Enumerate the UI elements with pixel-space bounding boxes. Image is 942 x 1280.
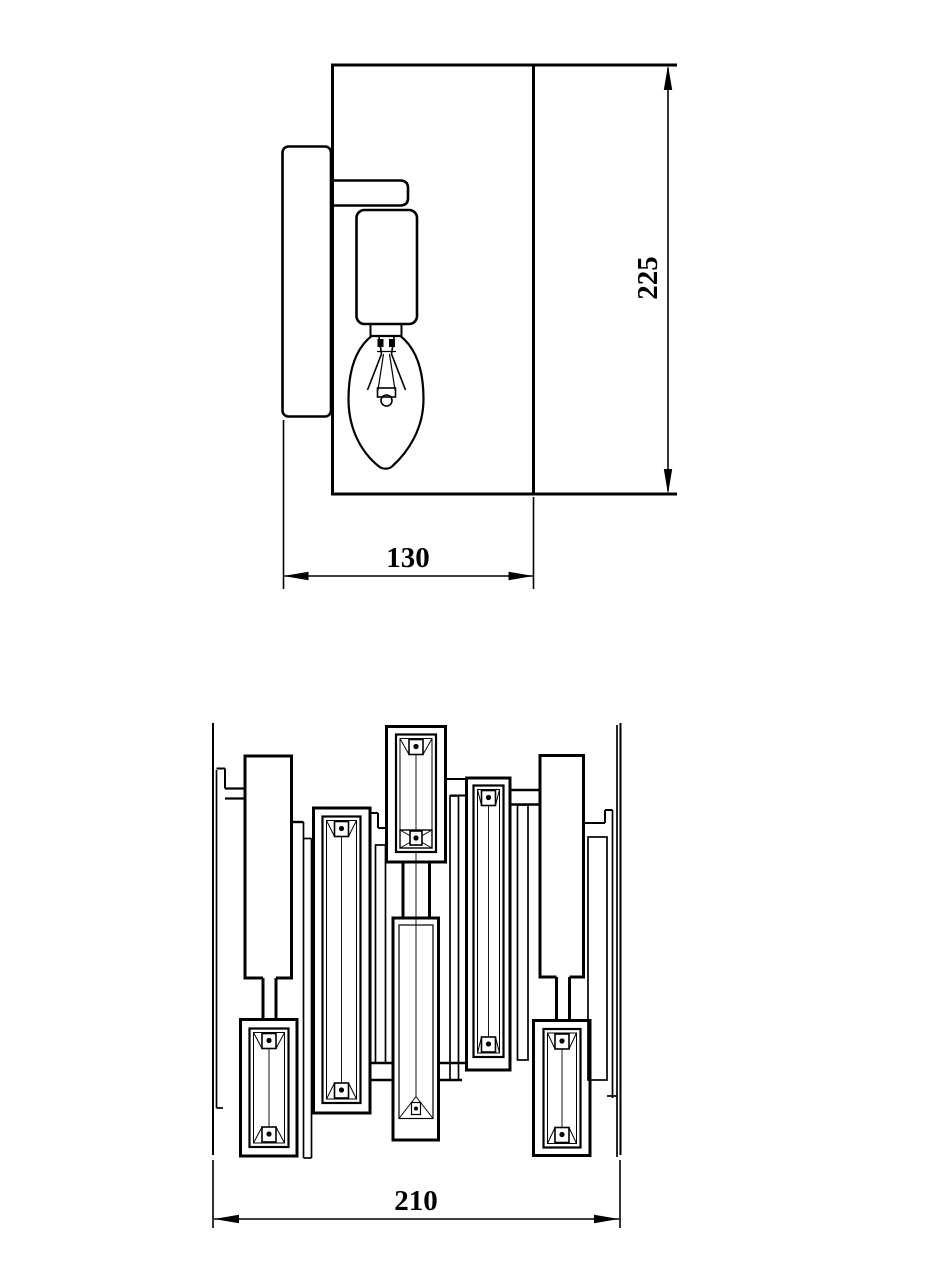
arrow-right-icon [509,572,534,580]
dimension-depth: 130 [284,420,534,589]
dim-width-label: 210 [394,1185,438,1217]
side-view: 225 130 [283,65,678,589]
lamp-shade [331,65,677,494]
dim-height-label: 225 [632,256,664,300]
bulb [349,336,424,469]
filament [368,337,406,406]
technical-drawing: 225 130 [0,0,942,1280]
arrow-left-icon [214,1215,239,1223]
frame [213,723,621,1158]
technical-drawing-page: 225 130 [0,0,942,1280]
front-view: 210 [213,723,621,1228]
lamp-socket [357,210,418,336]
arrow-left-icon [284,572,309,580]
dimension-height: 225 [632,65,672,494]
mounting-arm [332,181,408,206]
crystal-glyphs [250,735,581,1148]
arrow-up-icon [664,65,672,90]
arrow-down-icon [664,469,672,494]
dim-depth-label: 130 [386,542,430,574]
wall-plate [283,147,332,417]
arrow-right-icon [594,1215,619,1223]
dimension-width: 210 [213,1160,620,1228]
